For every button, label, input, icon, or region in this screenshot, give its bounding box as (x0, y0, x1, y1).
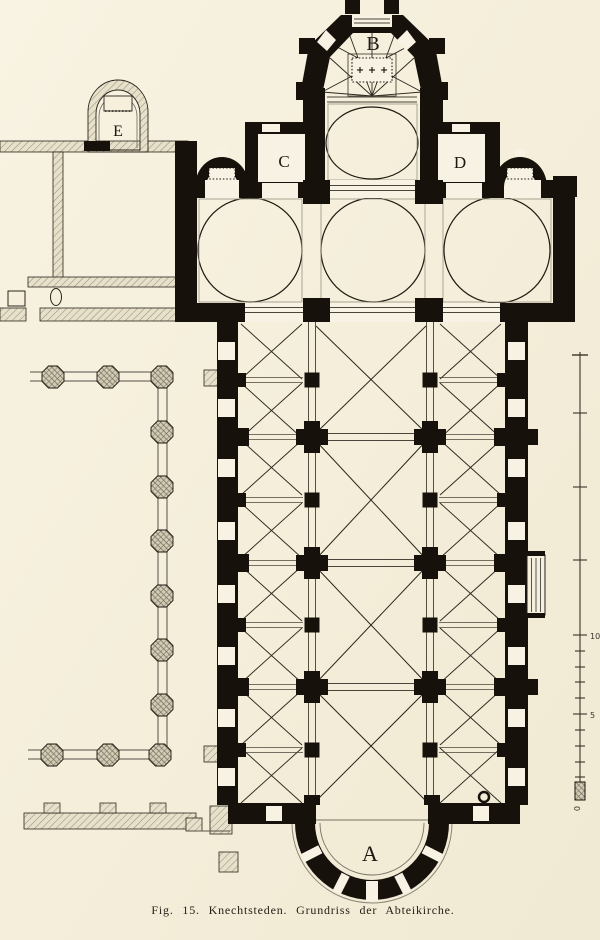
scale-label-10: 10 (590, 632, 600, 641)
label-chapel-d: D (454, 153, 466, 172)
label-east-apse: B (366, 33, 379, 55)
plate-page: A B C D E 10 5 0 Fig. 15. Knechtsteden. … (0, 0, 600, 940)
door-box (8, 291, 25, 306)
door-oval (51, 289, 62, 306)
label-west-apse: A (362, 841, 378, 866)
scale-label-0: 0 (572, 806, 581, 811)
scale-label-5: 5 (590, 711, 595, 720)
south-portal (527, 551, 545, 618)
label-chapel-e: E (113, 123, 123, 140)
label-chapel-c: C (278, 152, 289, 171)
abbey-floor-plan: A B C D E 10 5 0 Fig. 15. Knechtsteden. … (0, 0, 600, 940)
figure-caption: Fig. 15. Knechtsteden. Grundriss der Abt… (151, 903, 454, 917)
